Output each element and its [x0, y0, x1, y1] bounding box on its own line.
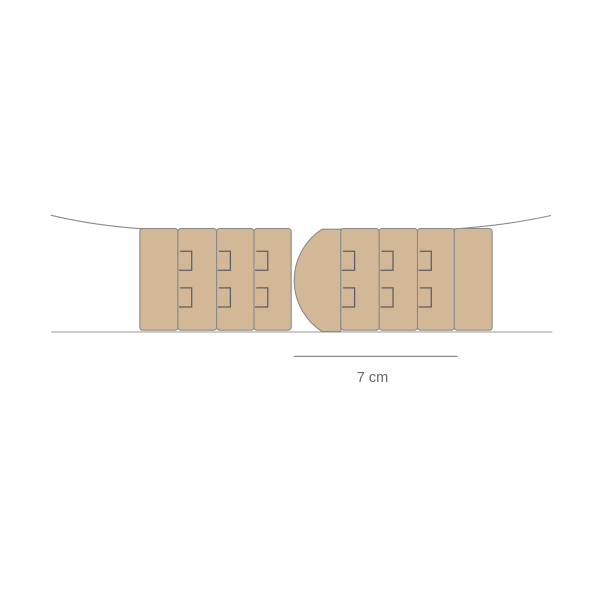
- svg-text:7 cm: 7 cm: [357, 370, 389, 386]
